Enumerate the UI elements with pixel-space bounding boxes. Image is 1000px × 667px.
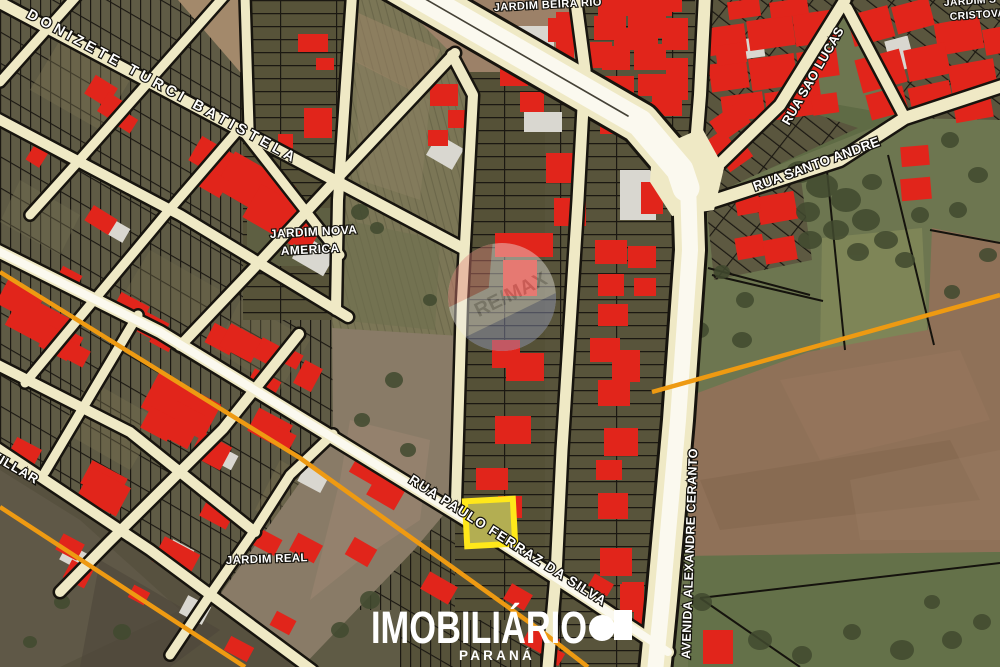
svg-text:IMOBILIÁRIO: IMOBILIÁRIO xyxy=(371,603,587,654)
svg-text:PARANÁ: PARANÁ xyxy=(459,648,535,663)
